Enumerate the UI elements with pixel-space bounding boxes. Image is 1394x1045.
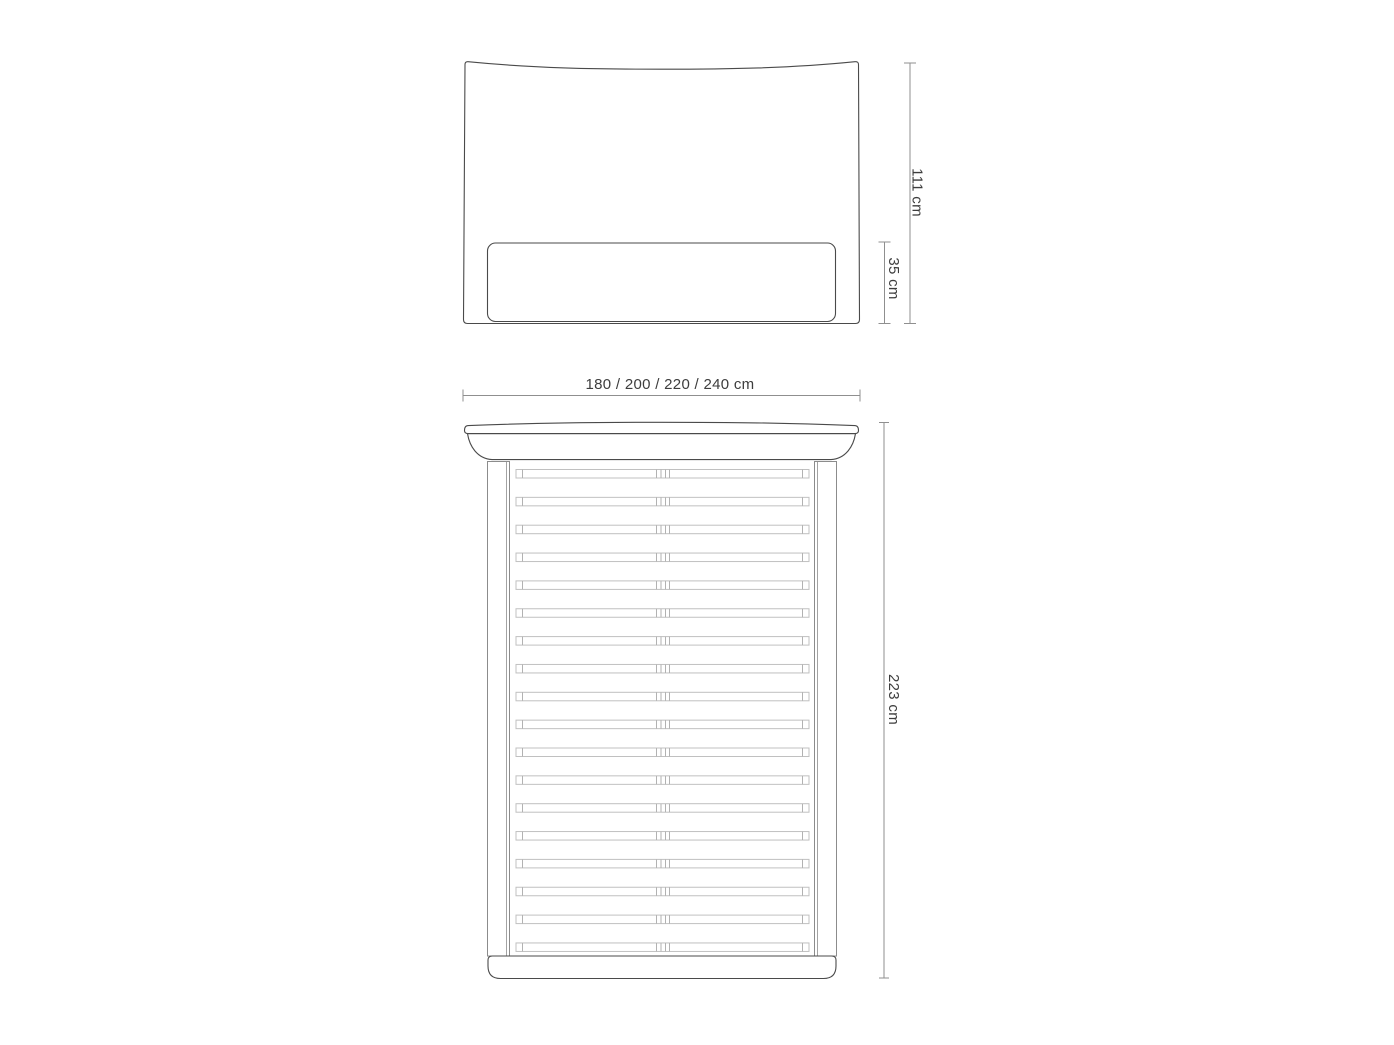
slat [516,470,809,479]
slat [516,804,809,813]
width-options-label: 180 / 200 / 220 / 240 cm [586,376,755,393]
slat [516,748,809,757]
bed-dimensions-diagram: 111 cm 35 cm 180 / 200 / 220 / 240 cm [0,0,1394,1045]
width-dimension: 180 / 200 / 220 / 240 cm [463,376,860,402]
slat [516,887,809,896]
slats [516,470,809,952]
headboard-lower-panel [488,243,836,322]
length-label: 223 cm [885,674,902,725]
headboard-top-view-body [468,434,856,460]
slat [516,581,809,590]
technical-drawing-canvas: 111 cm 35 cm 180 / 200 / 220 / 240 cm [0,0,1394,1045]
slat [516,915,809,924]
headboard-front-view [464,62,860,324]
slat [516,776,809,785]
slat [516,832,809,841]
headboard-top-view-lip [465,422,859,433]
slat [516,497,809,506]
footboard [488,956,836,979]
panel-height-dimension: 35 cm [879,242,903,324]
headboard-height-dimension: 111 cm [904,63,926,324]
headboard-height-label: 111 cm [909,168,926,217]
bed-top-view [465,422,859,978]
slat [516,637,809,646]
slat [516,525,809,534]
panel-height-label: 35 cm [885,257,902,299]
slat [516,692,809,701]
slat [516,553,809,562]
slat [516,664,809,673]
length-dimension: 223 cm [879,423,902,979]
headboard-outline [464,62,860,324]
slat [516,943,809,952]
slat [516,859,809,868]
slat [516,720,809,729]
slat [516,609,809,618]
